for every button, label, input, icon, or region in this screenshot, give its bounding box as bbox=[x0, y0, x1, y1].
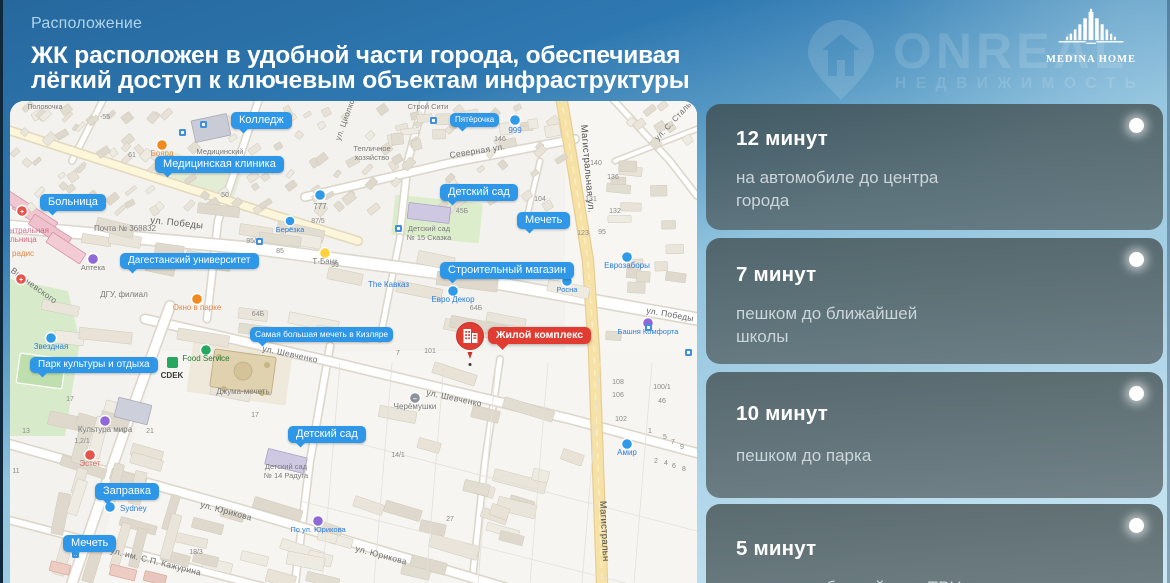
svg-text:101: 101 bbox=[424, 348, 436, 355]
svg-text:По ул. Юрикова: По ул. Юрикова bbox=[290, 525, 346, 534]
svg-text:Строй Сити: Строй Сити bbox=[408, 102, 449, 111]
svg-text:131: 131 bbox=[585, 196, 597, 203]
svg-text:64Б: 64Б bbox=[252, 311, 265, 318]
svg-text:льница: льница bbox=[10, 235, 37, 244]
svg-text:Почта № 368832: Почта № 368832 bbox=[94, 224, 156, 233]
svg-text:95: 95 bbox=[598, 229, 606, 236]
svg-text:100/1: 100/1 bbox=[653, 384, 671, 391]
svg-text:Половочка: Половочка bbox=[28, 104, 63, 111]
svg-text:Звездная: Звездная bbox=[34, 342, 69, 351]
svg-text:ДГУ, филиал: ДГУ, филиал bbox=[100, 290, 148, 299]
svg-text:13: 13 bbox=[22, 428, 30, 435]
svg-text:104: 104 bbox=[534, 196, 546, 203]
svg-text:46: 46 bbox=[658, 398, 666, 405]
svg-text:Еврозаборы: Еврозаборы bbox=[604, 261, 650, 270]
svg-text:17: 17 bbox=[251, 412, 259, 419]
svg-text:Тепличное: Тепличное bbox=[353, 144, 390, 153]
svg-text:+: + bbox=[19, 277, 23, 284]
svg-text:CDEK: CDEK bbox=[161, 371, 184, 380]
svg-text:136: 136 bbox=[607, 174, 619, 181]
svg-text:Эстет: Эстет bbox=[79, 459, 101, 468]
svg-text:Амир: Амир bbox=[617, 448, 637, 457]
svg-text:132: 132 bbox=[609, 208, 621, 215]
svg-text:хозяйство: хозяйство bbox=[355, 153, 390, 162]
svg-text:9: 9 bbox=[680, 444, 684, 451]
svg-text:102: 102 bbox=[615, 416, 627, 423]
svg-text:The Кавказ: The Кавказ bbox=[368, 280, 409, 289]
svg-text:Детский сад: Детский сад bbox=[408, 224, 451, 233]
svg-text:87/5: 87/5 bbox=[311, 218, 325, 225]
svg-text:+: + bbox=[20, 209, 24, 216]
svg-text:50: 50 bbox=[221, 192, 229, 199]
svg-text:999: 999 bbox=[508, 126, 522, 135]
svg-text:106: 106 bbox=[612, 392, 624, 399]
svg-text:17: 17 bbox=[66, 396, 74, 403]
svg-text:8: 8 bbox=[682, 466, 686, 473]
svg-text:Культура мира: Культура мира bbox=[78, 425, 133, 434]
svg-text:Аптека: Аптека bbox=[81, 263, 106, 272]
svg-text:18/3: 18/3 bbox=[189, 549, 203, 556]
svg-text:Берёзка: Берёзка bbox=[276, 225, 305, 234]
svg-text:№ 14 Радуга: № 14 Радуга bbox=[264, 471, 309, 480]
svg-text:Черёмушки: Черёмушки bbox=[394, 402, 437, 411]
svg-text:123: 123 bbox=[577, 230, 589, 237]
svg-text:11: 11 bbox=[12, 468, 19, 475]
svg-text:4: 4 bbox=[664, 460, 668, 467]
svg-text:27: 27 bbox=[446, 516, 454, 523]
svg-text:61: 61 bbox=[128, 152, 136, 159]
svg-text:радис: радис bbox=[12, 249, 34, 258]
svg-text:7: 7 bbox=[396, 350, 400, 357]
svg-text:5: 5 bbox=[663, 434, 667, 441]
svg-text:Джума-мечеть: Джума-мечеть bbox=[216, 387, 269, 396]
svg-text:Медицинский: Медицинский bbox=[197, 147, 244, 156]
svg-text:Food Service: Food Service bbox=[182, 354, 230, 363]
svg-text:-55: -55 bbox=[100, 114, 110, 121]
svg-text:64Б: 64Б bbox=[470, 305, 483, 312]
svg-text:№ 15 Сказка: № 15 Сказка bbox=[407, 233, 452, 242]
svg-text:Окно в парке: Окно в парке bbox=[173, 303, 222, 312]
svg-text:14/1: 14/1 bbox=[391, 452, 405, 459]
svg-text:1: 1 bbox=[648, 428, 652, 435]
svg-text:45Б: 45Б bbox=[456, 208, 469, 215]
svg-text:7: 7 bbox=[671, 439, 675, 446]
svg-text:99: 99 bbox=[331, 262, 339, 269]
svg-text:21: 21 bbox=[146, 428, 154, 435]
svg-text:777: 777 bbox=[313, 202, 327, 211]
svg-text:нтральная: нтральная bbox=[10, 226, 49, 235]
svg-text:85: 85 bbox=[276, 248, 284, 255]
svg-text:108: 108 bbox=[612, 379, 624, 386]
svg-text:146: 146 bbox=[494, 136, 506, 143]
svg-text:2: 2 bbox=[654, 458, 658, 465]
svg-text:Детский сад: Детский сад bbox=[265, 462, 308, 471]
svg-text:1,2/1: 1,2/1 bbox=[74, 438, 90, 445]
svg-text:Sydney: Sydney bbox=[120, 504, 147, 513]
svg-text:Росна: Росна bbox=[557, 285, 579, 294]
svg-text:Евро Декор: Евро Декор bbox=[431, 295, 475, 304]
svg-text:140: 140 bbox=[590, 160, 602, 167]
svg-text:6: 6 bbox=[672, 463, 676, 470]
